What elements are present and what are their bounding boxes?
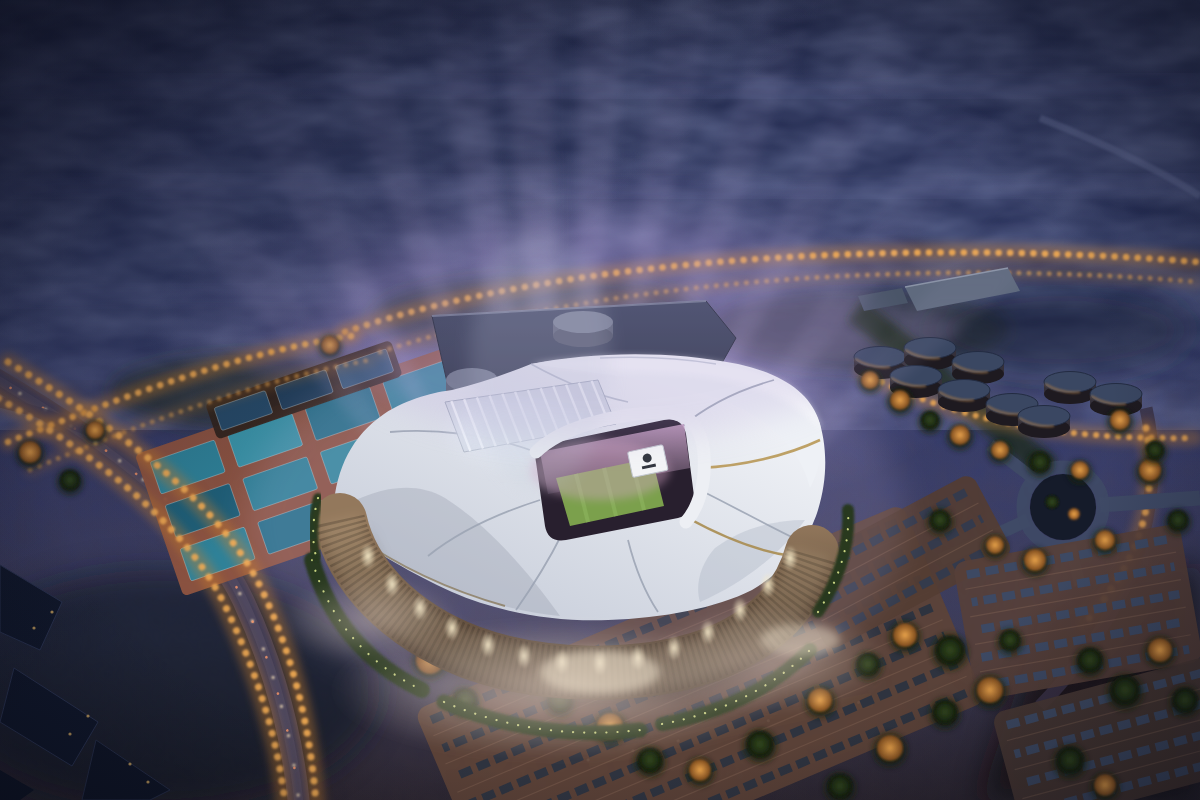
scene-stadium-night-aerial [0, 0, 1200, 800]
corner-darkening [0, 0, 1200, 800]
rendering-canvas [0, 0, 1200, 800]
